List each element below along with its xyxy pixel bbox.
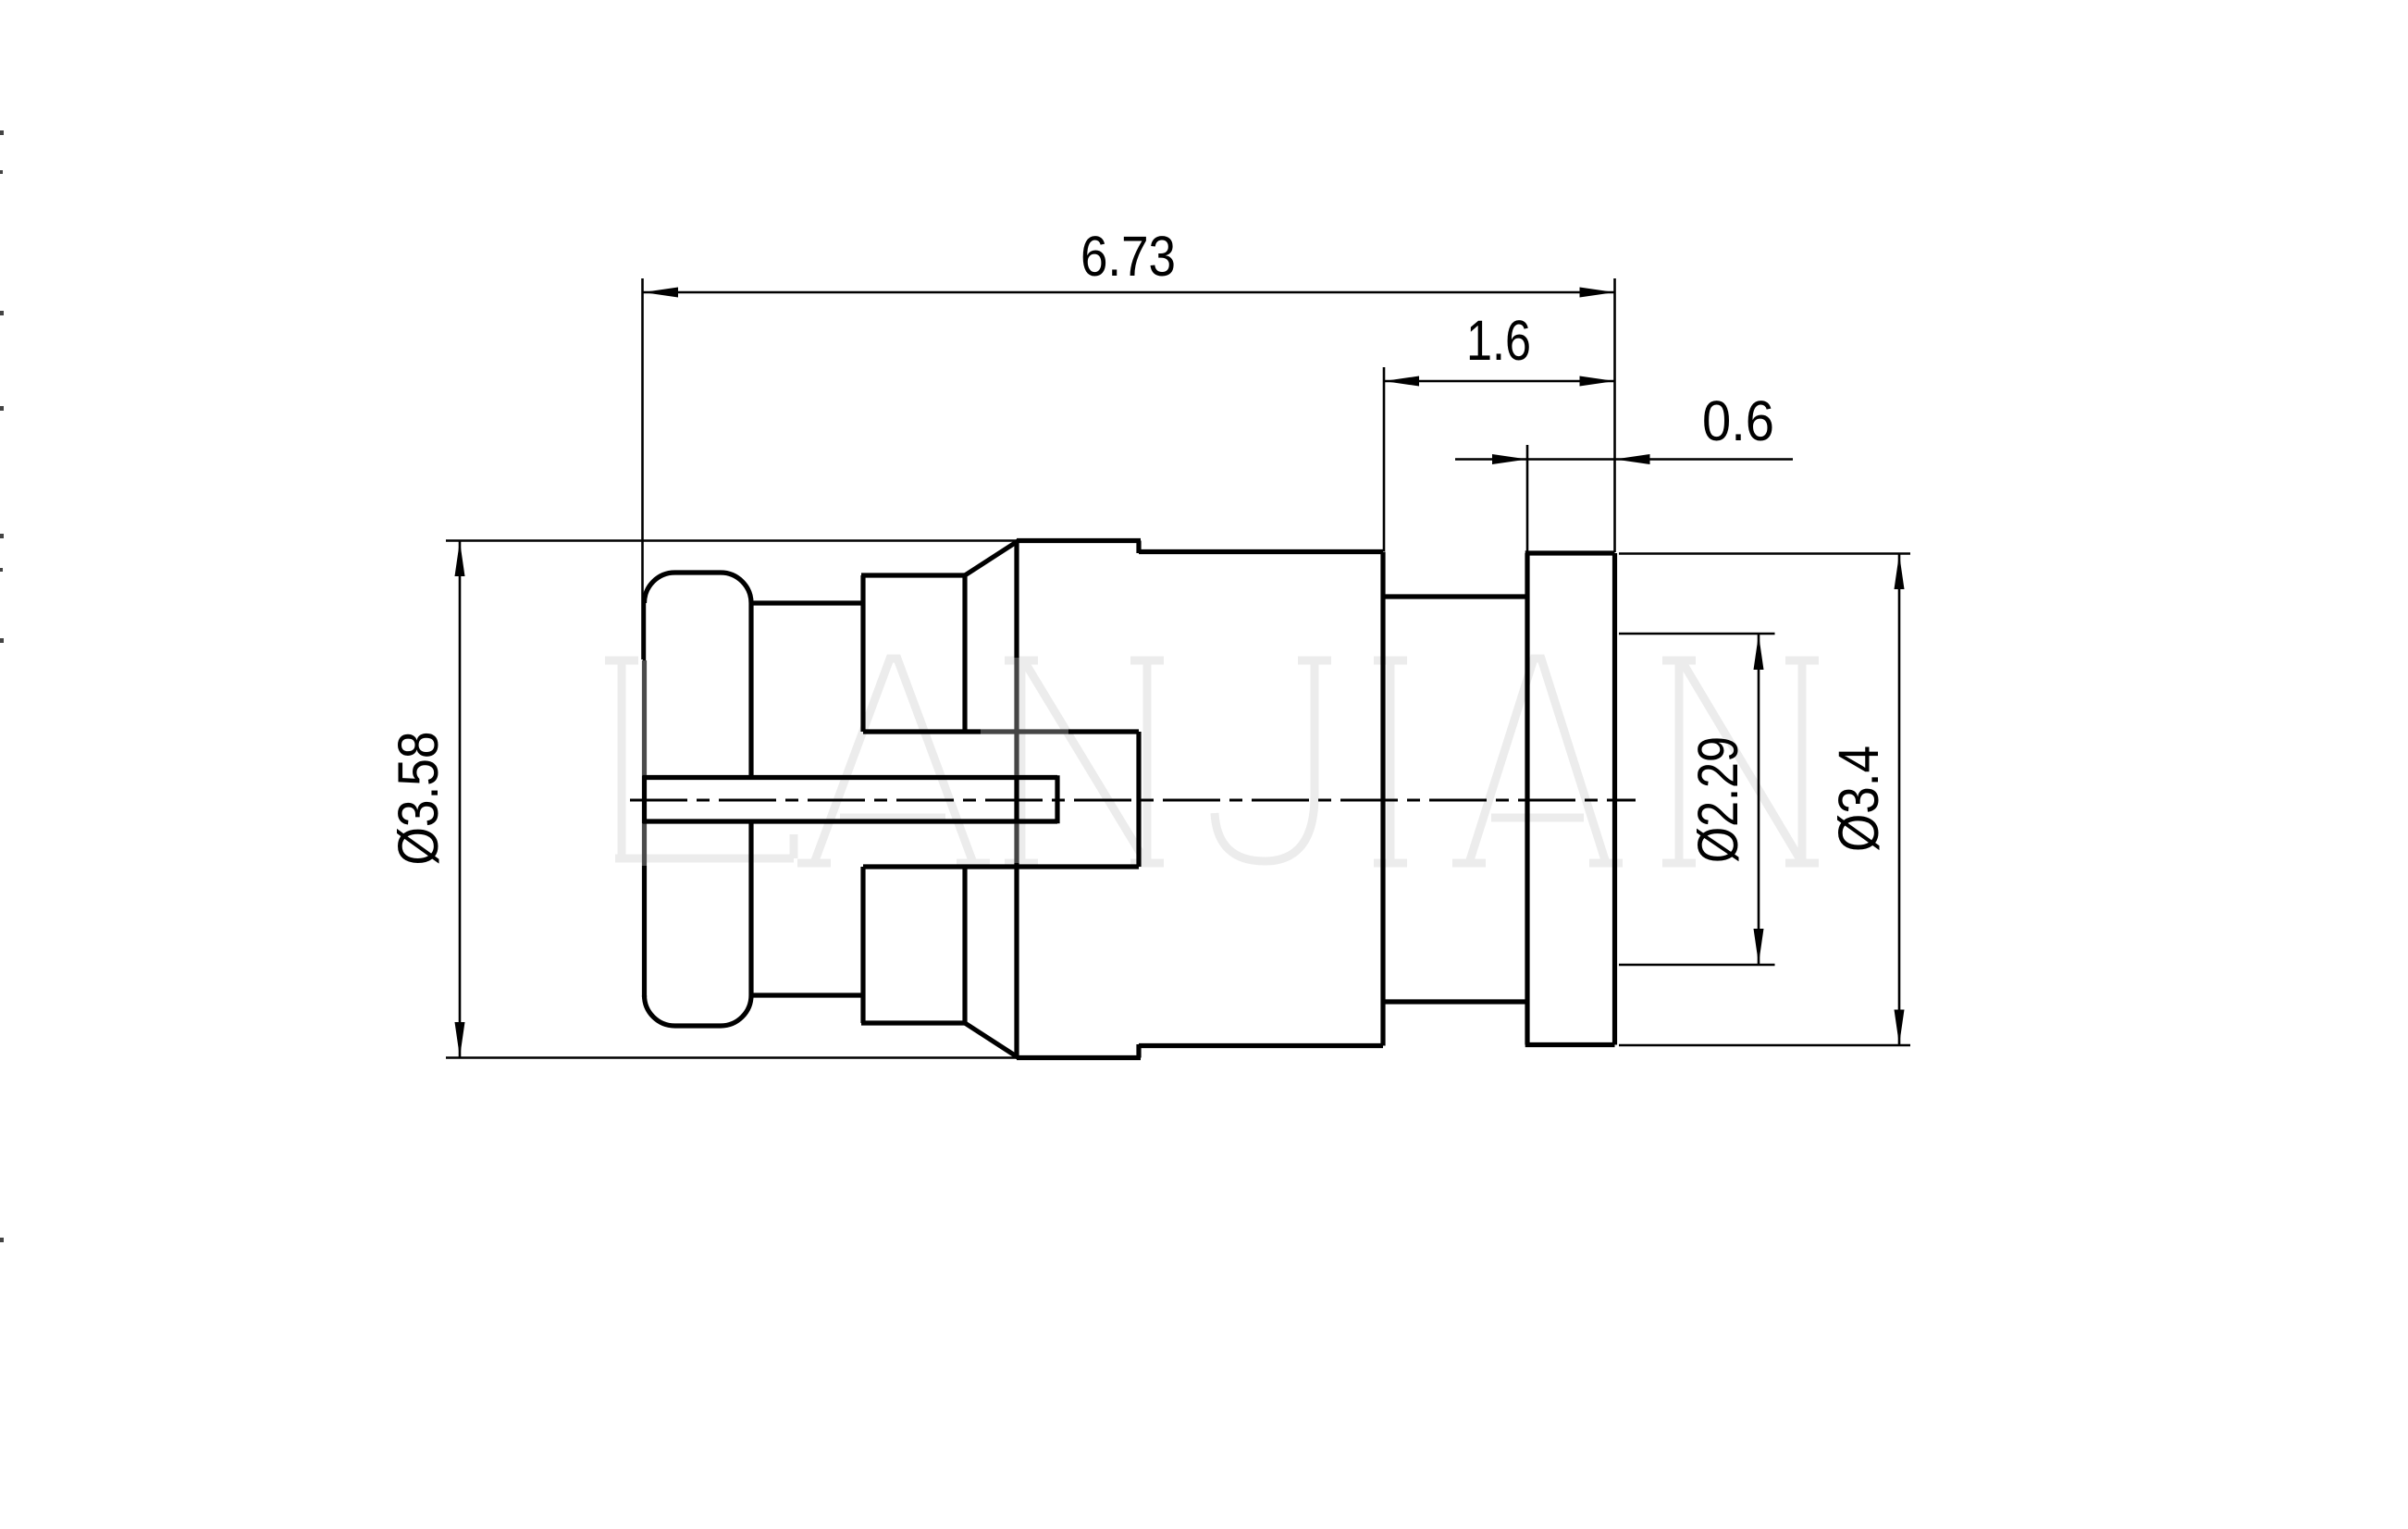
svg-text:6.73: 6.73: [1081, 225, 1176, 288]
svg-text:Ø3.58: Ø3.58: [387, 732, 450, 866]
svg-text:Ø3.4: Ø3.4: [1827, 746, 1890, 852]
svg-text:Ø2.29: Ø2.29: [1686, 736, 1749, 863]
svg-text:1.6: 1.6: [1466, 309, 1531, 372]
svg-text:0.6: 0.6: [1702, 389, 1774, 452]
